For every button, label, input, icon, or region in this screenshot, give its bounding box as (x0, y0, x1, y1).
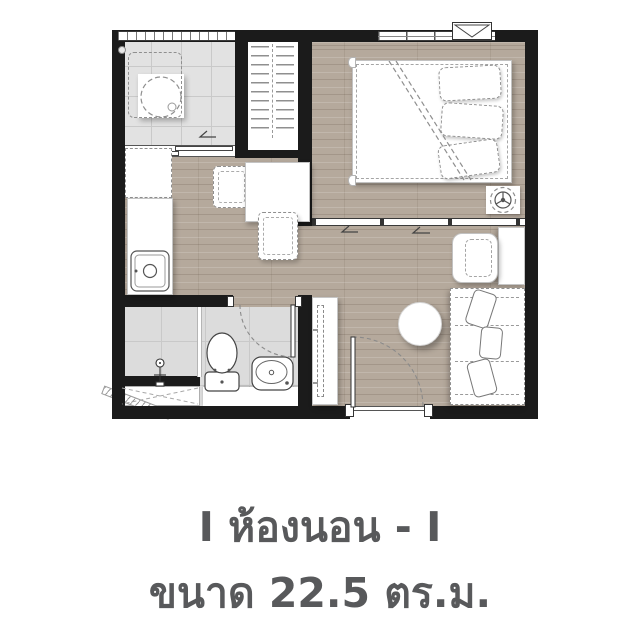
sofa-pillow (479, 326, 504, 360)
sliding-leaf (175, 146, 233, 151)
wall-bathroom-top (125, 295, 233, 307)
chair-cushion (263, 217, 293, 255)
side-table (498, 227, 525, 285)
tv-screen (317, 305, 324, 397)
caption: I ห้องนอน - I ขนาด 22.5 ตร.ม. (0, 494, 640, 626)
chair-cushion (218, 171, 245, 203)
armchair-cushion (465, 239, 492, 277)
tv-bracket (313, 329, 318, 331)
wall-bottom-right (430, 406, 538, 419)
dining-chair (258, 212, 298, 260)
bed-post (348, 57, 356, 68)
bathroom-door-frame (227, 296, 234, 307)
wall-bathroom-right (298, 295, 312, 406)
bedroom-partition (312, 218, 525, 226)
air-conditioner-marker (452, 22, 492, 40)
round-table (398, 302, 442, 346)
entrance-door-frame (424, 404, 433, 417)
floorplan (112, 30, 538, 419)
wall-bottom-left (112, 406, 350, 419)
wall-right (525, 30, 538, 419)
ceiling-fan-box (486, 186, 520, 214)
bed-pillow (438, 64, 502, 101)
caption-line-1: I ห้องนอน - I (0, 494, 640, 560)
wall-shower-ledge (112, 376, 200, 386)
wall-balcony-right (235, 30, 248, 158)
wardrobe-hangers (276, 46, 294, 136)
wall-left (112, 30, 125, 419)
armchair (452, 233, 498, 283)
tv-bracket (313, 382, 318, 384)
wardrobe-rail (272, 44, 273, 138)
caption-line-2: ขนาด 22.5 ตร.ม. (0, 560, 640, 626)
wall-wardrobe-bottom (235, 150, 298, 158)
kitchen-counter (127, 198, 173, 295)
refrigerator (125, 148, 172, 198)
floorplan-page: I ห้องนอน - I ขนาด 22.5 ตร.ม. (0, 0, 640, 640)
entrance-door-frame (345, 404, 354, 417)
bed-post (348, 175, 356, 186)
tv-console (312, 297, 338, 405)
wardrobe-hangers (251, 46, 269, 136)
bathroom-curb (203, 387, 298, 406)
balcony-window (118, 31, 235, 41)
shower-screen (197, 307, 202, 377)
bathroom-door-frame (295, 296, 302, 307)
bed-pillow (440, 102, 504, 140)
ac-triangle-icon (453, 23, 491, 39)
washing-machine-outline (128, 52, 182, 118)
entrance-threshold (352, 406, 428, 411)
